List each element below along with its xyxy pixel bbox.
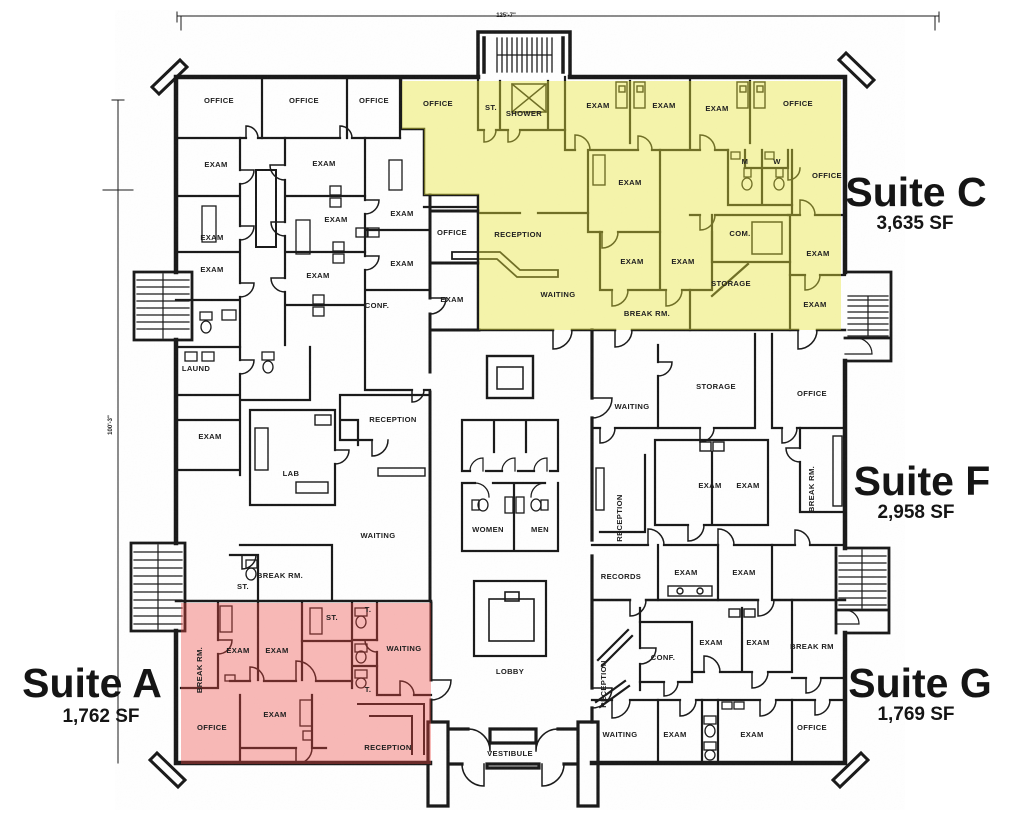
svg-text:T.: T.	[365, 605, 372, 614]
svg-text:WAITING: WAITING	[387, 644, 422, 653]
svg-text:OFFICE: OFFICE	[197, 723, 227, 732]
svg-text:ST.: ST.	[485, 103, 497, 112]
svg-text:RECEPTION: RECEPTION	[615, 494, 624, 541]
svg-text:EXAM: EXAM	[390, 259, 413, 268]
svg-text:OFFICE: OFFICE	[797, 723, 827, 732]
svg-text:EXAM: EXAM	[200, 265, 223, 274]
svg-text:BREAK RM.: BREAK RM.	[257, 571, 303, 580]
svg-text:125'-7": 125'-7"	[496, 13, 516, 19]
svg-text:WAITING: WAITING	[541, 290, 576, 299]
svg-text:EXAM: EXAM	[200, 233, 223, 242]
svg-text:OFFICE: OFFICE	[437, 228, 467, 237]
svg-text:EXAM: EXAM	[671, 257, 694, 266]
svg-text:OFFICE: OFFICE	[812, 171, 842, 180]
svg-text:100'-3": 100'-3"	[108, 415, 114, 435]
svg-text:LAB: LAB	[283, 469, 300, 478]
svg-text:EXAM: EXAM	[806, 249, 829, 258]
svg-text:STORAGE: STORAGE	[696, 382, 736, 391]
svg-text:LOBBY: LOBBY	[496, 667, 524, 676]
svg-text:EXAM: EXAM	[746, 638, 769, 647]
svg-text:EXAM: EXAM	[705, 104, 728, 113]
svg-text:SHOWER: SHOWER	[506, 109, 542, 118]
svg-text:EXAM: EXAM	[740, 730, 763, 739]
svg-text:1,769 SF: 1,769 SF	[877, 704, 954, 725]
svg-text:Suite A: Suite A	[22, 660, 162, 706]
svg-text:CONF.: CONF.	[651, 653, 676, 662]
svg-text:BREAK RM.: BREAK RM.	[624, 309, 670, 318]
svg-text:EXAM: EXAM	[732, 568, 755, 577]
svg-text:EXAM: EXAM	[618, 178, 641, 187]
svg-text:EXAM: EXAM	[198, 432, 221, 441]
svg-text:RECEPTION: RECEPTION	[599, 660, 608, 707]
svg-text:EXAM: EXAM	[306, 271, 329, 280]
svg-text:EXAM: EXAM	[312, 159, 335, 168]
svg-text:1,762 SF: 1,762 SF	[62, 706, 139, 727]
svg-text:WAITING: WAITING	[361, 531, 396, 540]
svg-text:EXAM: EXAM	[652, 101, 675, 110]
svg-text:W: W	[773, 157, 781, 166]
svg-text:EXAM: EXAM	[263, 710, 286, 719]
svg-text:Suite F: Suite F	[854, 458, 991, 504]
svg-text:EXAM: EXAM	[663, 730, 686, 739]
svg-text:OFFICE: OFFICE	[423, 99, 453, 108]
svg-text:EXAM: EXAM	[265, 646, 288, 655]
svg-text:OFFICE: OFFICE	[783, 99, 813, 108]
svg-text:EXAM: EXAM	[698, 481, 721, 490]
svg-text:Suite G: Suite G	[848, 660, 992, 706]
svg-text:EXAM: EXAM	[699, 638, 722, 647]
svg-text:ST.: ST.	[237, 582, 249, 591]
svg-text:EXAM: EXAM	[390, 209, 413, 218]
svg-text:EXAM: EXAM	[674, 568, 697, 577]
svg-text:EXAM: EXAM	[586, 101, 609, 110]
svg-text:EXAM: EXAM	[736, 481, 759, 490]
svg-text:EXAM: EXAM	[226, 646, 249, 655]
svg-text:RECEPTION: RECEPTION	[494, 230, 541, 239]
svg-text:T.: T.	[365, 685, 372, 694]
svg-text:ST.: ST.	[326, 613, 338, 622]
svg-text:BREAK RM: BREAK RM	[790, 642, 834, 651]
svg-text:WAITING: WAITING	[615, 402, 650, 411]
svg-text:OFFICE: OFFICE	[204, 96, 234, 105]
svg-text:RECORDS: RECORDS	[601, 572, 641, 581]
svg-text:2,958 SF: 2,958 SF	[877, 502, 954, 523]
svg-text:OFFICE: OFFICE	[797, 389, 827, 398]
svg-text:EXAM: EXAM	[204, 160, 227, 169]
svg-text:STORAGE: STORAGE	[711, 279, 751, 288]
svg-text:VESTIBULE: VESTIBULE	[487, 749, 533, 758]
svg-text:EXAM: EXAM	[440, 295, 463, 304]
svg-text:BREAK RM.: BREAK RM.	[195, 647, 204, 693]
svg-text:Suite C: Suite C	[845, 169, 986, 215]
svg-text:CONF.: CONF.	[365, 301, 390, 310]
svg-text:M: M	[742, 157, 749, 166]
svg-text:OFFICE: OFFICE	[289, 96, 319, 105]
svg-text:BREAK RM.: BREAK RM.	[807, 466, 816, 512]
svg-text:RECEPTION: RECEPTION	[369, 415, 416, 424]
svg-text:EXAM: EXAM	[324, 215, 347, 224]
svg-text:RECEPTION: RECEPTION	[364, 743, 411, 752]
svg-text:EXAM: EXAM	[803, 300, 826, 309]
svg-text:COM.: COM.	[729, 229, 750, 238]
svg-text:WOMEN: WOMEN	[472, 525, 504, 534]
svg-text:3,635 SF: 3,635 SF	[876, 213, 953, 234]
svg-text:LAUND: LAUND	[182, 364, 210, 373]
svg-text:MEN: MEN	[531, 525, 549, 534]
svg-text:EXAM: EXAM	[620, 257, 643, 266]
svg-text:WAITING: WAITING	[603, 730, 638, 739]
svg-text:OFFICE: OFFICE	[359, 96, 389, 105]
